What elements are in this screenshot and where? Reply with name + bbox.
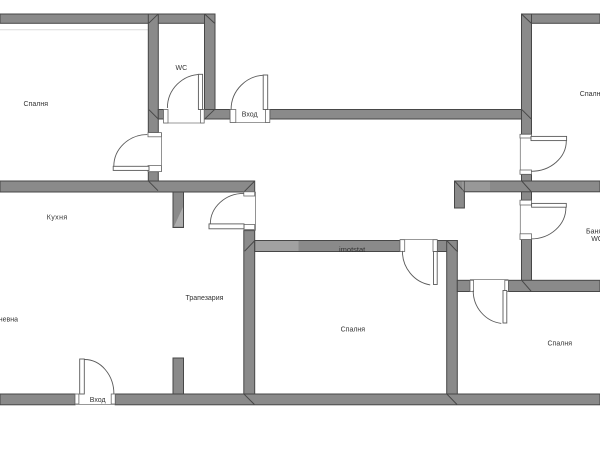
svg-text:Спалня: Спалня [341,327,366,334]
svg-text:Трапезария: Трапезария [186,295,224,302]
svg-text:imotstat: imotstat [339,245,366,254]
svg-text:Спалня: Спалня [24,101,49,108]
svg-text:Баня с: Баня с [586,228,600,235]
svg-text:Спалня: Спалня [548,341,573,348]
svg-text:Кухня: Кухня [47,215,68,222]
svg-text:Вход: Вход [242,111,258,118]
svg-text:WC: WC [591,236,600,243]
svg-text:Вход: Вход [90,397,106,404]
svg-text:WC: WC [176,65,188,72]
svg-text:Дневна: Дневна [0,317,18,324]
svg-text:Спалня: Спалня [580,91,600,98]
